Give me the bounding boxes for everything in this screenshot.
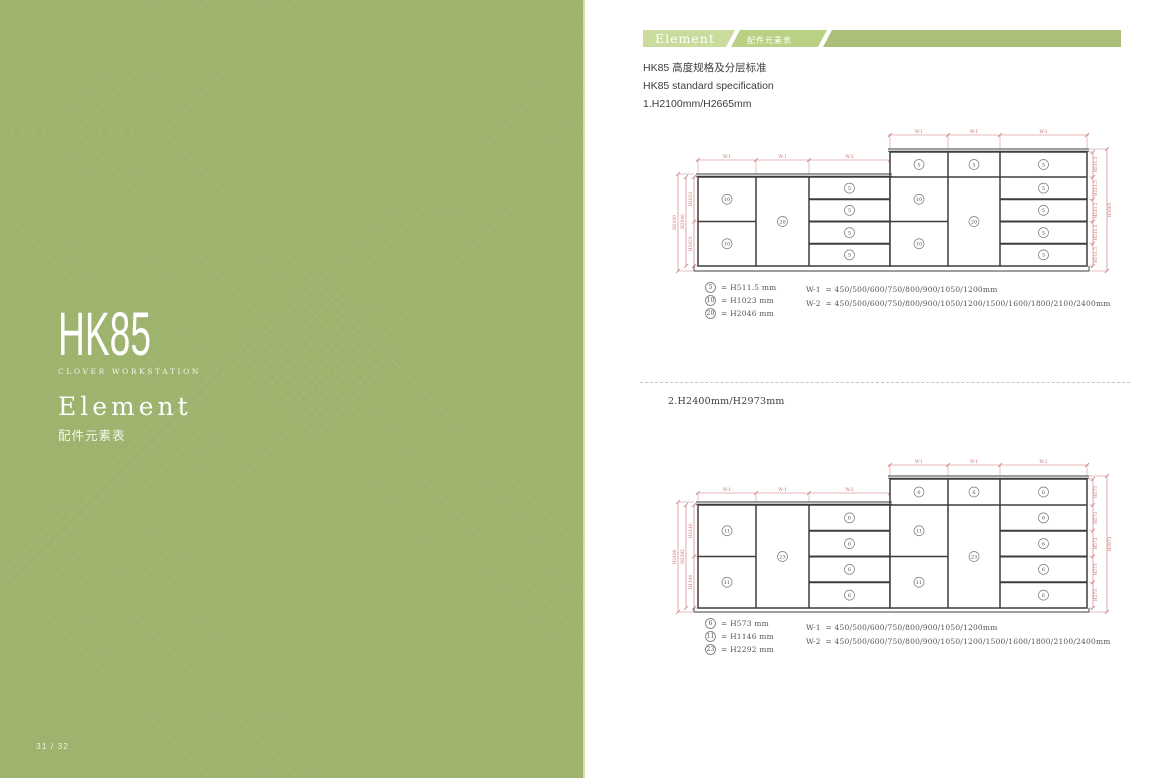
svg-text:H511.5: H511.5 [1094,202,1099,218]
svg-text:H2046: H2046 [681,214,686,229]
intro-line-zh: HK85 高度规格及分层标准 [643,60,774,75]
svg-text:5: 5 [1042,253,1045,259]
height-legend-2: 6 = H573 mm 11 = H1146 mm 23 = H2292 mm [705,617,774,656]
svg-text:H2400: H2400 [673,549,678,564]
svg-text:5: 5 [1042,186,1045,192]
svg-text:W-1: W-1 [915,460,924,465]
intro-block: HK85 高度规格及分层标准 HK85 standard specificati… [643,60,774,110]
svg-text:H2292: H2292 [681,549,686,564]
svg-text:H573: H573 [1094,537,1099,549]
svg-text:6: 6 [1042,541,1045,547]
svg-text:11: 11 [724,580,730,586]
legend-row: 11 = H1146 mm [705,630,774,643]
legend-row: 23 = H2292 mm [705,643,774,656]
svg-text:6: 6 [848,541,851,547]
band-subtitle: 配件元素表 [747,35,792,46]
svg-text:6: 6 [1042,567,1045,573]
width-legend-1: W-1 = 450/500/600/750/800/900/1050/1200m… [806,283,1111,310]
catalog-page: HK85 CLOVER WORKSTATION Element 配件元素表 31… [0,0,1169,778]
page-number: 31 / 32 [36,741,69,751]
svg-text:H1146: H1146 [689,523,694,538]
height-legend-1: 5 = H511.5 mm 10 = H1023 mm 20 = H2046 m… [705,281,777,320]
svg-text:6: 6 [848,516,851,522]
legend-row: W-2 = 450/500/600/750/800/900/1050/1200/… [806,297,1111,311]
logo-subtitle: CLOVER WORKSTATION [58,367,208,376]
spec1-title: 1.H2100mm/H2665mm [643,98,774,110]
circled-number: 23 [705,644,716,655]
svg-text:W-2: W-2 [1039,460,1048,465]
band-title: Element [655,31,715,46]
legend-row: W-2 = 450/500/600/750/800/900/1050/1200/… [806,635,1111,649]
svg-text:W-1: W-1 [970,130,979,135]
spec-diagram-h2100: W-1W-1W-2W-1W-1W-2H2100H2046H1023H1023H5… [660,128,1130,280]
svg-text:H511.5: H511.5 [1094,247,1099,263]
intro-line-en: HK85 standard specification [643,80,774,92]
svg-text:5: 5 [848,208,851,214]
svg-text:H573: H573 [1094,486,1099,498]
circled-number: 10 [705,295,716,306]
circled-number: 6 [705,618,716,629]
svg-text:5: 5 [917,162,920,168]
svg-text:H1146: H1146 [689,575,694,590]
svg-text:20: 20 [779,219,785,225]
svg-text:6: 6 [848,593,851,599]
svg-text:23: 23 [779,554,785,560]
svg-text:23: 23 [971,554,977,560]
svg-text:H511.5: H511.5 [1094,180,1099,196]
svg-text:W-2: W-2 [845,155,854,160]
left-brand-panel: HK85 CLOVER WORKSTATION Element 配件元素表 31… [0,0,585,778]
svg-text:5: 5 [848,230,851,236]
svg-text:20: 20 [971,219,977,225]
circled-number: 20 [705,308,716,319]
svg-text:6: 6 [1042,593,1045,599]
svg-text:10: 10 [916,242,922,248]
svg-text:W-2: W-2 [845,488,854,493]
svg-text:W-1: W-1 [915,130,924,135]
svg-text:H2100: H2100 [673,215,678,230]
svg-text:10: 10 [916,197,922,203]
svg-text:H573: H573 [1094,563,1099,575]
svg-text:W-1: W-1 [723,155,732,160]
spec-diagram-h2400: W-1W-1W-2W-1W-1W-2H2400H2292H1146H1146H5… [660,452,1130,620]
svg-text:H573: H573 [1094,589,1099,601]
svg-text:5: 5 [848,186,851,192]
svg-text:W-1: W-1 [778,155,787,160]
svg-text:5: 5 [848,253,851,259]
svg-text:5: 5 [1042,230,1045,236]
svg-text:11: 11 [916,580,922,586]
section-title: Element [58,392,208,421]
svg-text:5: 5 [1042,162,1045,168]
svg-text:6: 6 [917,490,920,496]
svg-text:6: 6 [972,490,975,496]
content-page: Element 配件元素表 HK85 高度规格及分层标准 HK85 standa… [585,0,1169,778]
svg-text:H1023: H1023 [689,192,694,207]
spec2-title: 2.H2400mm/H2973mm [668,396,785,407]
svg-text:6: 6 [1042,516,1045,522]
svg-text:5: 5 [1042,208,1045,214]
section-subtitle: 配件元素表 [58,425,208,444]
svg-text:6: 6 [848,567,851,573]
svg-text:W-2: W-2 [1039,130,1048,135]
legend-row: 6 = H573 mm [705,617,774,630]
legend-row: 5 = H511.5 mm [705,281,777,294]
svg-text:W-1: W-1 [970,460,979,465]
svg-text:H2665: H2665 [1108,202,1113,217]
svg-text:H511.5: H511.5 [1094,224,1099,240]
svg-text:5: 5 [972,162,975,168]
brand-block: HK85 CLOVER WORKSTATION Element 配件元素表 [58,308,208,444]
svg-text:6: 6 [1042,490,1045,496]
svg-text:11: 11 [916,529,922,535]
header-band: Element 配件元素表 [643,30,1121,47]
section-divider [640,382,1130,383]
svg-text:11: 11 [724,529,730,535]
svg-text:10: 10 [724,197,730,203]
svg-text:W-1: W-1 [723,488,732,493]
svg-text:H1023: H1023 [689,236,694,251]
legend-row: 10 = H1023 mm [705,294,777,307]
legend-row: W-1 = 450/500/600/750/800/900/1050/1200m… [806,621,1111,635]
width-legend-2: W-1 = 450/500/600/750/800/900/1050/1200m… [806,621,1111,648]
svg-text:W-1: W-1 [778,488,787,493]
circled-number: 5 [705,282,716,293]
legend-row: 20 = H2046 mm [705,307,777,320]
legend-row: W-1 = 450/500/600/750/800/900/1050/1200m… [806,283,1111,297]
svg-text:H573: H573 [1094,512,1099,524]
svg-text:10: 10 [724,242,730,248]
circled-number: 11 [705,631,716,642]
hk85-logo: HK85 [58,308,151,361]
svg-text:H2973: H2973 [1108,536,1113,551]
svg-text:H511.5: H511.5 [1094,156,1099,172]
